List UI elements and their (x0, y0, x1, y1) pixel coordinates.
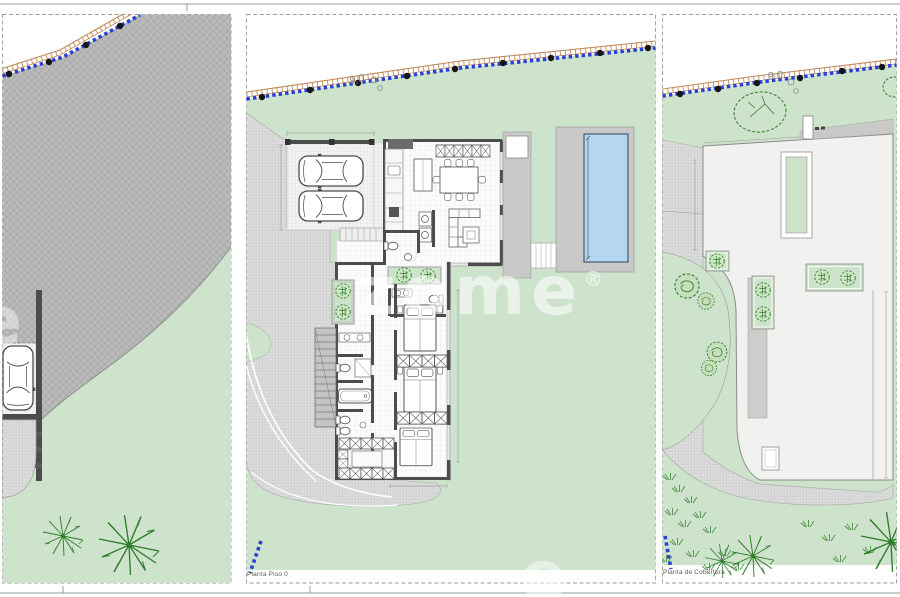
chimney (803, 116, 813, 139)
garden-steps (531, 243, 557, 268)
toilet-icon (336, 416, 350, 424)
car-icon (299, 189, 363, 223)
sink-icon (360, 422, 366, 428)
site-wall-stub (3, 414, 43, 420)
sheet-bottom-ticks (63, 586, 310, 593)
plant-icon (421, 269, 435, 283)
floor-plan-label: Planta Piso 0 (247, 571, 288, 578)
pool (584, 134, 628, 262)
plant-icon (710, 254, 724, 268)
equipment-box (506, 136, 528, 158)
stairs (315, 328, 336, 427)
cabinet-row (436, 145, 490, 157)
bedroom-wing (315, 262, 460, 488)
closet-island (352, 451, 382, 467)
rooflight (762, 447, 779, 470)
wardrobe-row (397, 412, 447, 424)
planter (388, 267, 441, 284)
shrub-icon (698, 293, 715, 310)
toilet-icon (384, 242, 398, 250)
floor-plan-panel: 9,0 (247, 41, 656, 573)
toilet-icon (336, 364, 350, 372)
toilet-icon (429, 295, 443, 303)
architectural-drawing-sheet: 9,0 (0, 0, 900, 597)
living-block (383, 139, 504, 266)
kitchen-hood (388, 139, 413, 149)
roof-plan-label: Planta de Cobertura (663, 569, 725, 576)
site-retaining-wall (36, 290, 42, 481)
bed-icon (404, 305, 436, 351)
plant-icon (336, 284, 350, 298)
planter (706, 251, 729, 271)
plant-icon (336, 305, 350, 319)
wall (432, 210, 435, 247)
skylight (781, 152, 812, 238)
car-icon (299, 154, 363, 188)
car-icon (1, 346, 35, 410)
plant-icon (756, 307, 770, 321)
roof-vent (821, 127, 825, 130)
roof-plan-panel: 9,0 (659, 59, 900, 578)
planter (332, 280, 354, 324)
bathtub-icon (339, 389, 372, 403)
plans-drawing: 9,0 (0, 0, 900, 597)
shrub-icon (707, 342, 727, 362)
bed-icon (400, 428, 432, 466)
sink-icon (405, 254, 412, 261)
shrub-icon (701, 360, 716, 375)
bed-icon (404, 366, 436, 412)
plant-icon (815, 270, 829, 284)
plant-icon (756, 283, 770, 297)
sink-icon (388, 166, 400, 175)
plant-icon (841, 271, 855, 285)
dining-table (440, 167, 478, 193)
terrace-and-pool (503, 127, 634, 278)
carport (279, 131, 384, 230)
stove-icon (389, 207, 399, 217)
plant-icon (397, 268, 411, 282)
wardrobe-row (397, 355, 447, 367)
svg-text:9,0: 9,0 (767, 69, 785, 83)
bidet-icon (336, 427, 350, 435)
vanity (339, 333, 370, 342)
planter (806, 264, 863, 291)
coffee-table (463, 227, 479, 243)
planter (752, 276, 774, 329)
kitchen-counter (385, 149, 403, 231)
shrub-icon (675, 274, 699, 298)
site-plan-panel (1, 10, 231, 584)
roof-vent (815, 127, 819, 130)
